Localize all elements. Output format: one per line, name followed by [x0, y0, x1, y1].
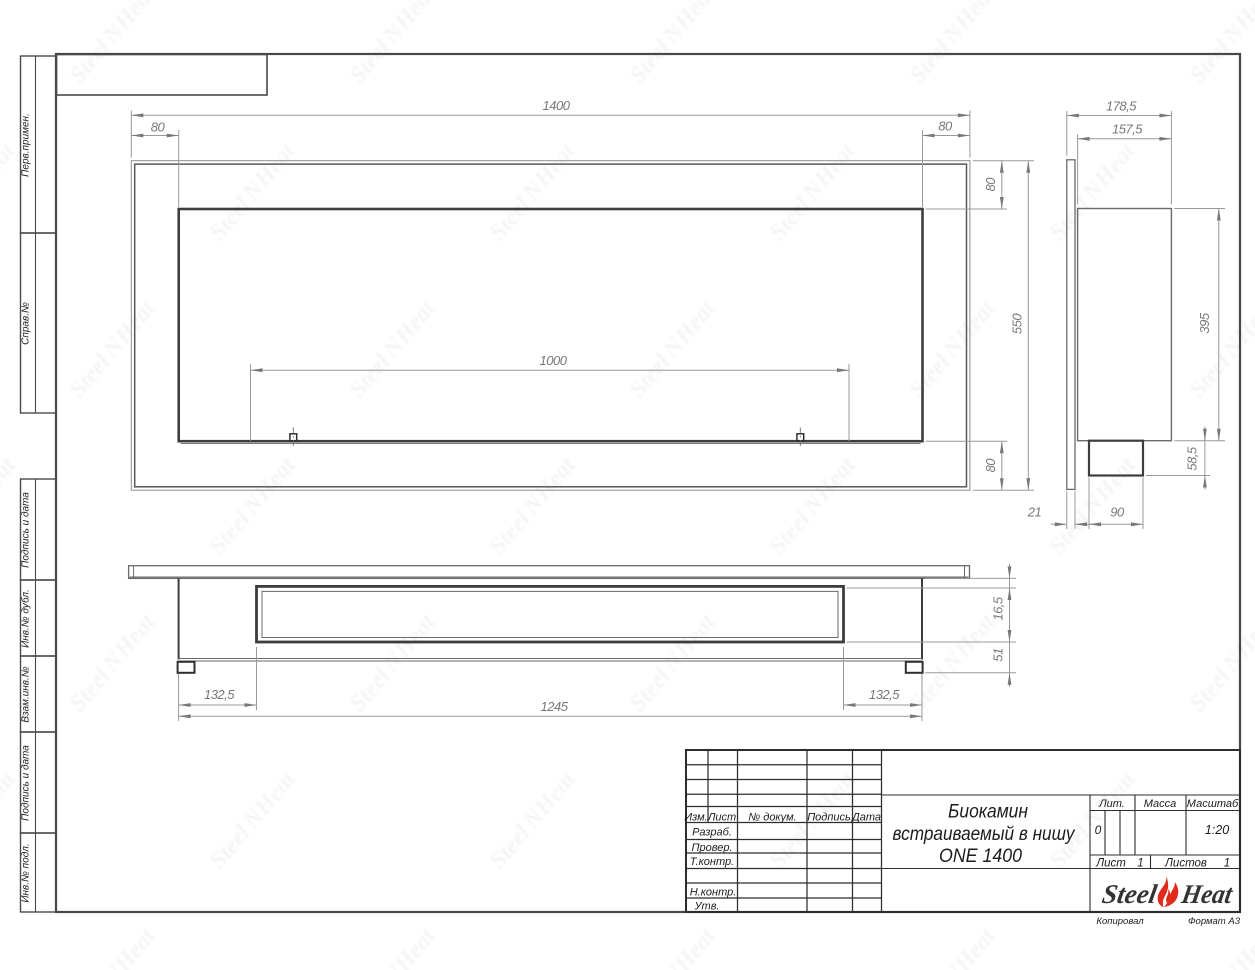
svg-text:80: 80: [938, 119, 953, 134]
svg-text:Утв.: Утв.: [694, 901, 720, 913]
svg-text:132,5: 132,5: [869, 687, 900, 702]
svg-text:Инв.№ дубл.: Инв.№ дубл.: [20, 589, 32, 648]
svg-text:395: 395: [1197, 312, 1212, 333]
svg-text:Перв.примен.: Перв.примен.: [21, 113, 32, 177]
svg-text:1245: 1245: [541, 699, 569, 714]
svg-text:1400: 1400: [543, 98, 571, 113]
svg-text:Подпись и дата: Подпись и дата: [21, 745, 32, 821]
svg-text:встраиваемый в нишу: встраиваемый в нишу: [893, 824, 1076, 845]
svg-text:1000: 1000: [540, 353, 568, 368]
svg-text:Масштаб: Масштаб: [1187, 798, 1239, 810]
svg-text:Формат А3: Формат А3: [1188, 916, 1241, 927]
svg-text:51: 51: [991, 648, 1006, 662]
svg-text:Steel: Steel: [1100, 879, 1160, 909]
svg-text:16,5: 16,5: [991, 596, 1006, 621]
svg-text:Heat: Heat: [1179, 879, 1236, 909]
svg-text:Лист: Лист: [707, 812, 736, 824]
svg-text:Биокамин: Биокамин: [948, 802, 1028, 823]
svg-text:Лист: Лист: [1095, 858, 1126, 870]
svg-text:58,5: 58,5: [1185, 446, 1200, 471]
svg-text:550: 550: [1010, 313, 1025, 334]
svg-text:132,5: 132,5: [204, 687, 235, 702]
svg-text:Подпись и дата: Подпись и дата: [21, 492, 32, 568]
svg-text:0: 0: [1095, 823, 1102, 837]
svg-text:1:20: 1:20: [1205, 823, 1229, 837]
svg-text:Изм.: Изм.: [684, 812, 707, 824]
svg-text:157,5: 157,5: [1112, 122, 1143, 137]
svg-text:178,5: 178,5: [1106, 99, 1137, 114]
svg-text:Масса: Масса: [1144, 798, 1177, 810]
svg-text:Справ.№: Справ.№: [21, 302, 32, 345]
svg-text:1: 1: [1137, 858, 1143, 870]
svg-text:ONE 1400: ONE 1400: [939, 846, 1022, 867]
svg-text:Т.контр.: Т.контр.: [690, 856, 734, 868]
svg-text:Провер.: Провер.: [692, 842, 733, 854]
svg-text:80: 80: [983, 177, 998, 192]
svg-text:Копировал: Копировал: [1096, 916, 1144, 927]
svg-text:1: 1: [1224, 858, 1230, 870]
svg-text:80: 80: [151, 120, 166, 135]
svg-text:21: 21: [1027, 505, 1042, 520]
svg-text:№ докум.: № докум.: [748, 812, 796, 824]
svg-text:Взам.инв.№: Взам.инв.№: [21, 666, 32, 722]
svg-text:Инв.№ подл.: Инв.№ подл.: [21, 843, 32, 902]
svg-text:Лит.: Лит.: [1098, 798, 1125, 810]
svg-text:80: 80: [983, 458, 998, 473]
svg-text:Разраб.: Разраб.: [692, 827, 732, 839]
svg-text:Листов: Листов: [1164, 858, 1207, 870]
svg-text:Н.контр.: Н.контр.: [690, 887, 737, 899]
svg-text:90: 90: [1110, 505, 1125, 520]
svg-text:Дата: Дата: [850, 812, 881, 824]
svg-text:Подпись: Подпись: [807, 812, 851, 824]
